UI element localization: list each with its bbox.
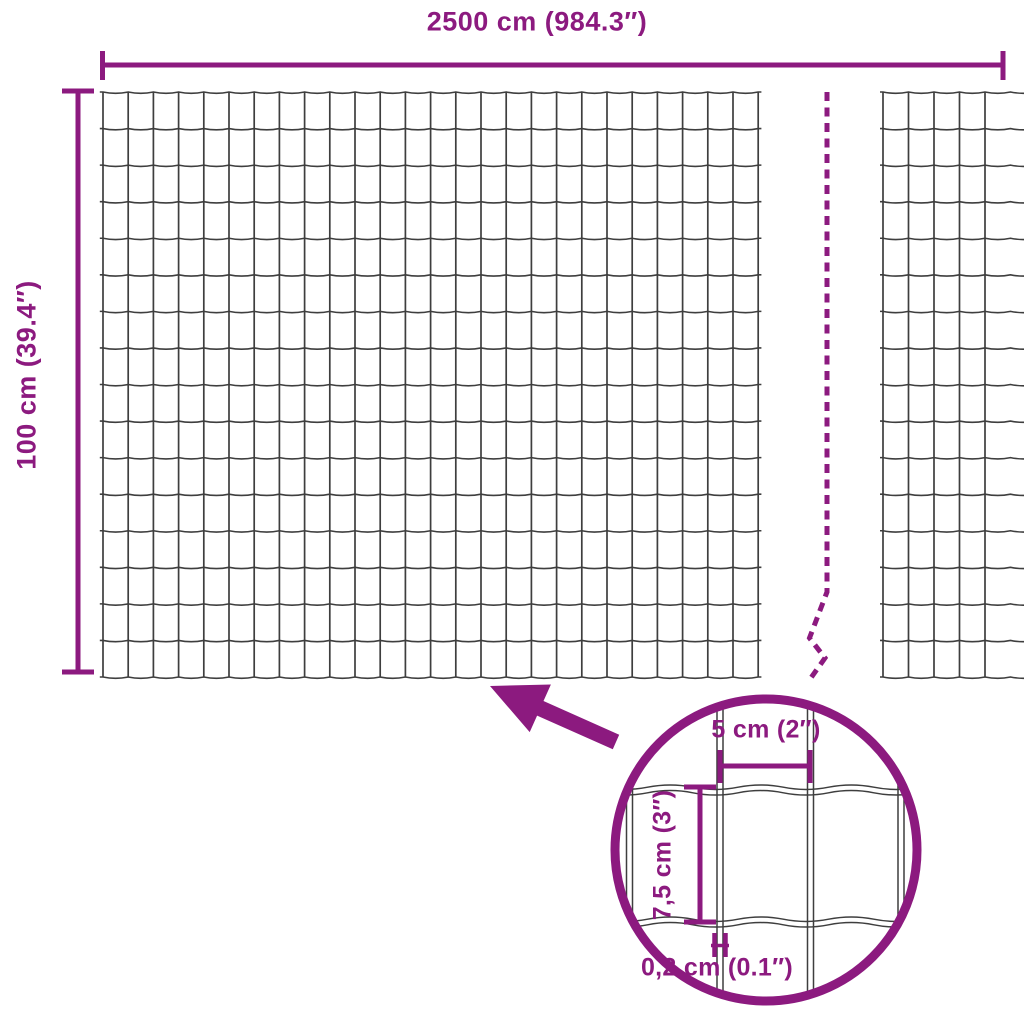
zoom-arrow-icon xyxy=(490,685,619,750)
wire-thickness-label: 0,2 cm (0.1″) xyxy=(641,954,793,983)
height-dimension-label: 100 cm (39.4″) xyxy=(12,280,43,470)
cell-height-dimension-line xyxy=(684,787,716,922)
width-dimension-line xyxy=(103,51,1004,80)
dimension-diagram: 2500 cm (984.3″) 100 cm (39.4″) 5 cm (2″… xyxy=(0,0,1024,1024)
cell-height-dimension-label: 7,5 cm (3″) xyxy=(649,790,678,921)
height-dimension-line xyxy=(62,91,94,672)
diagram-drawing xyxy=(0,0,1024,1024)
cell-width-dimension-line xyxy=(720,750,810,783)
mesh-grid-left xyxy=(100,92,762,678)
cell-width-dimension-label: 5 cm (2″) xyxy=(711,716,820,745)
width-dimension-label: 2500 cm (984.3″) xyxy=(427,7,648,38)
mesh-grid-right xyxy=(880,92,1024,678)
break-line-icon xyxy=(808,92,827,682)
